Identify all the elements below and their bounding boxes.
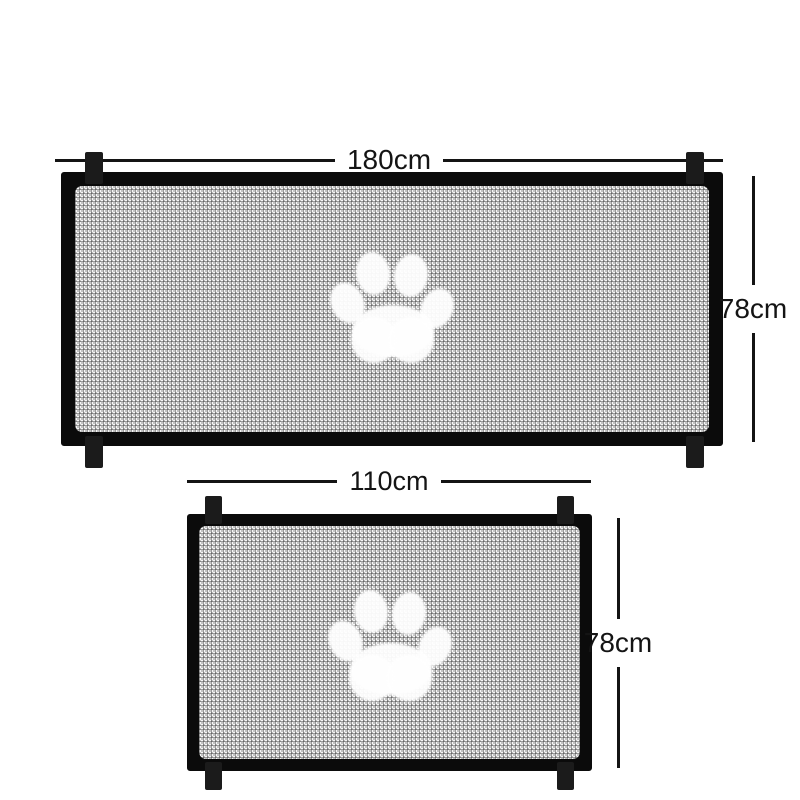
paw-toe (391, 252, 431, 299)
mounting-strap-top-left (205, 496, 222, 524)
mounting-strap-top-right (686, 152, 704, 184)
paw-toe (389, 589, 429, 636)
height-dimension-label-small: 78cm (584, 629, 652, 657)
product-image-canvas: 180cm 78cm 110cm (0, 0, 800, 800)
mesh-screen-small (199, 526, 580, 759)
width-dimension-small: 110cm (187, 466, 591, 496)
dimension-line-segment (752, 333, 755, 442)
dimension-line-segment (617, 518, 620, 619)
paw-print-icon (329, 590, 451, 704)
height-dimension-large: 78cm (722, 176, 784, 442)
mounting-strap-bottom-right (557, 762, 574, 790)
dimension-line-segment (443, 159, 723, 162)
width-dimension-large: 180cm (55, 145, 723, 175)
gate-panel-large (61, 172, 723, 446)
mounting-strap-bottom-left (85, 436, 103, 468)
width-dimension-label-large: 180cm (347, 146, 431, 174)
dimension-line-segment (187, 480, 337, 483)
height-dimension-small: 78cm (587, 518, 649, 768)
dimension-line-segment (752, 176, 755, 285)
paw-pad (388, 317, 434, 363)
mounting-strap-top-right (557, 496, 574, 524)
dimension-line-segment (441, 480, 591, 483)
paw-pad (386, 655, 432, 701)
mounting-strap-top-left (85, 152, 103, 184)
paw-print-icon (331, 252, 453, 366)
height-dimension-label-large: 78cm (719, 295, 787, 323)
mounting-strap-bottom-right (686, 436, 704, 468)
dimension-line-segment (617, 667, 620, 768)
mesh-screen-large (75, 186, 709, 432)
gate-panel-small (187, 514, 592, 771)
width-dimension-label-small: 110cm (349, 468, 428, 495)
mounting-strap-bottom-left (205, 762, 222, 790)
